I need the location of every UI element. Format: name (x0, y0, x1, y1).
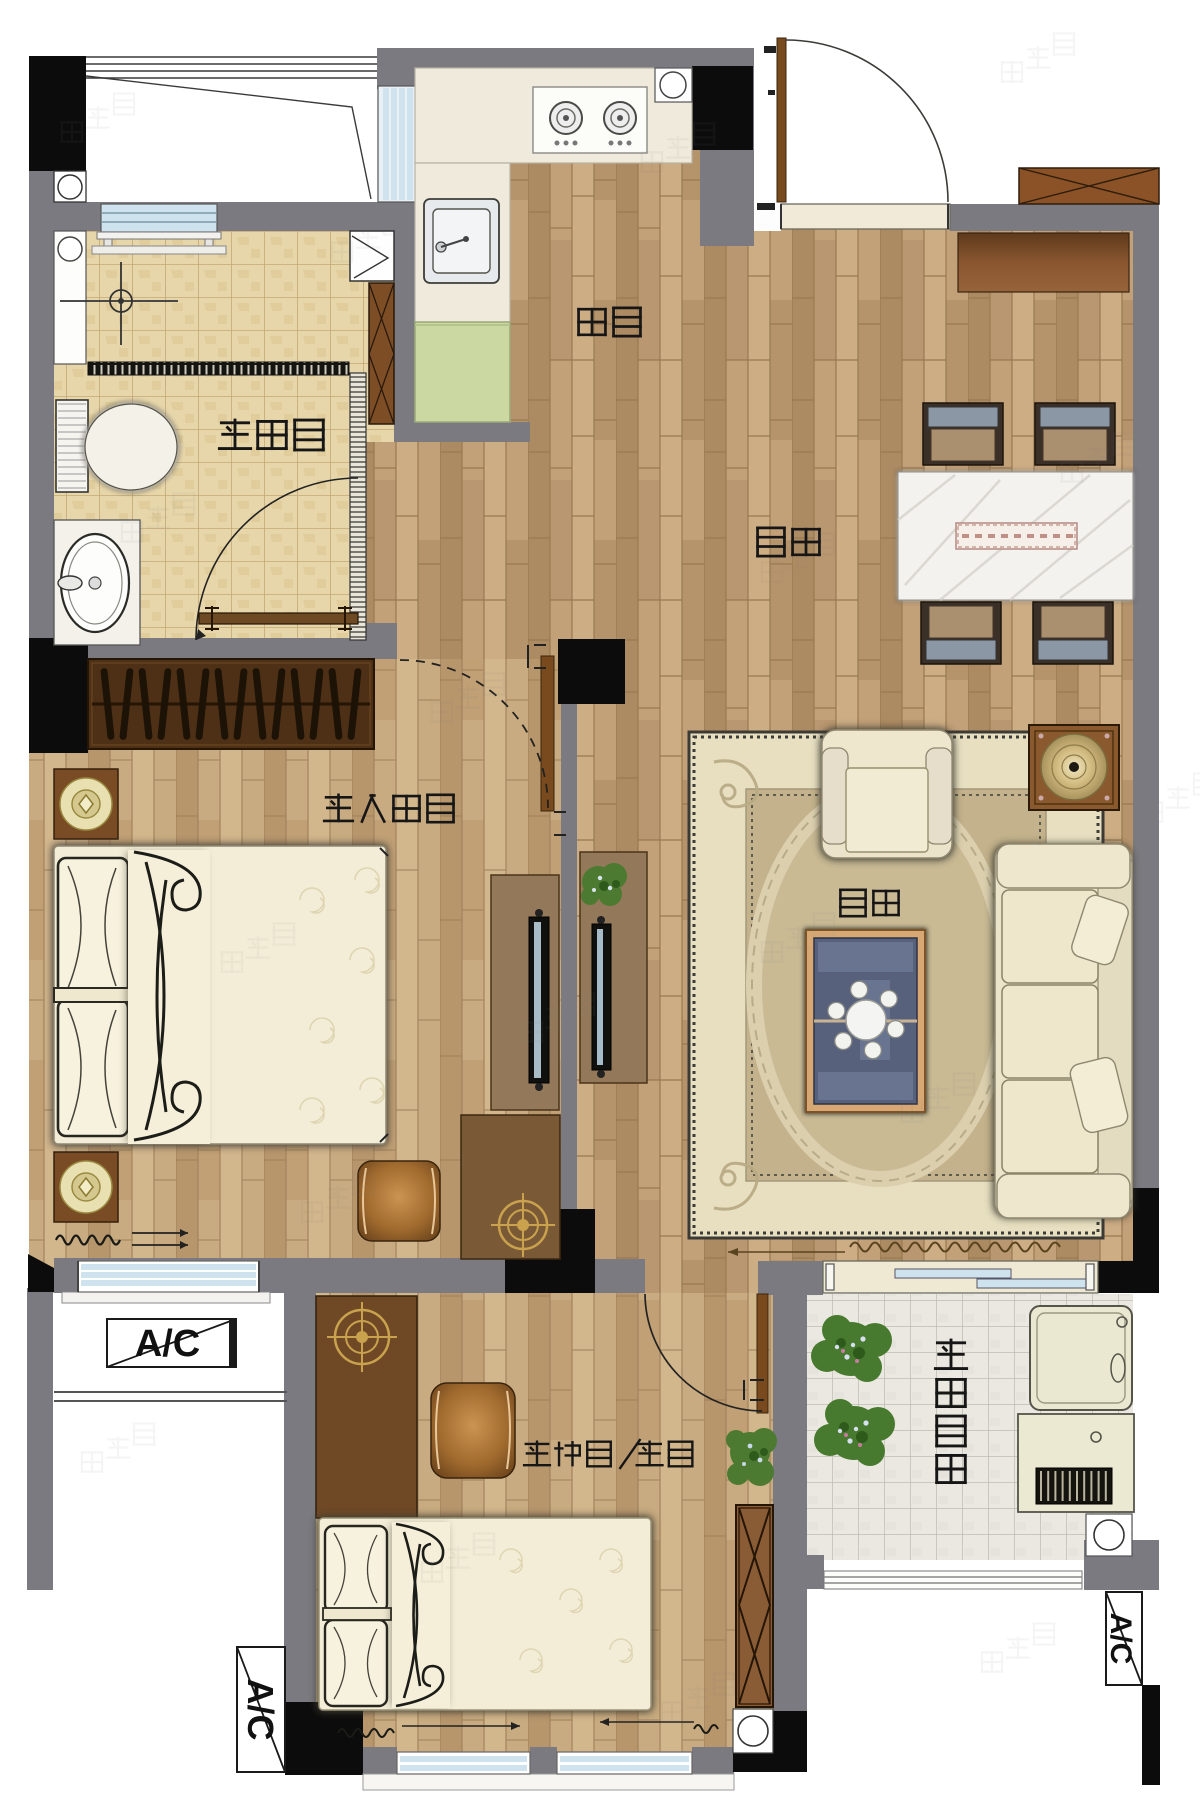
svg-text:A/C: A/C (1104, 1613, 1137, 1665)
svg-text:A/C: A/C (135, 1323, 200, 1365)
svg-text:A/C: A/C (240, 1679, 281, 1741)
